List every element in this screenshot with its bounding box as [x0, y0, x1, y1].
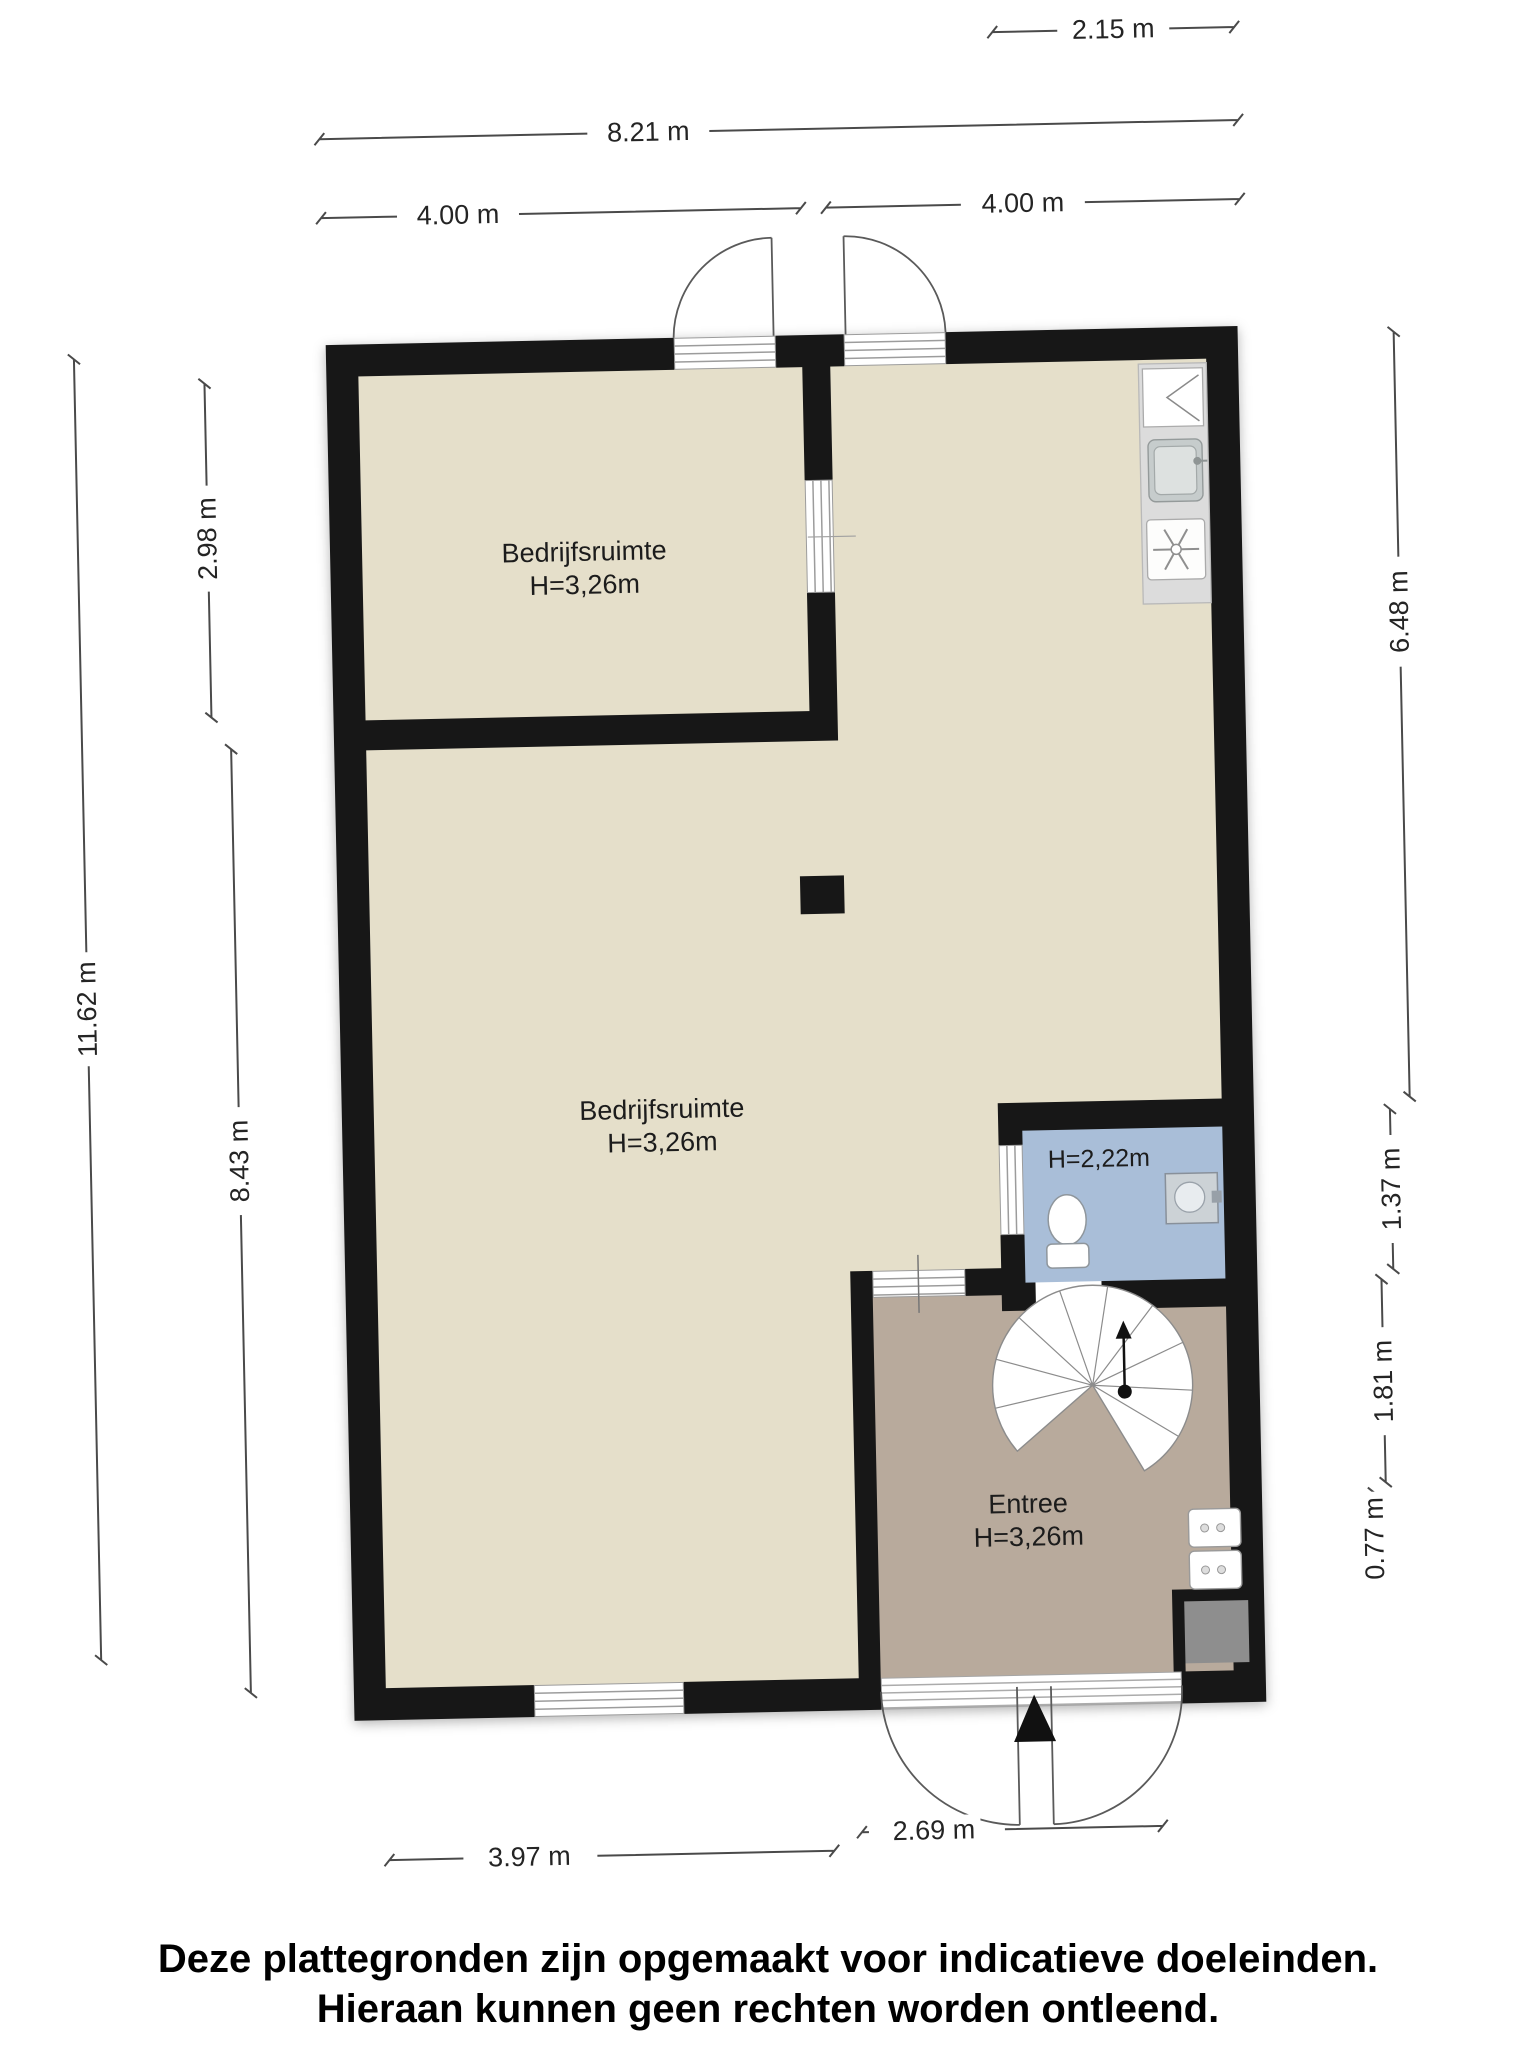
dim-top-left-half: 4.00 m	[411, 199, 504, 232]
dim-top-section: 2.15 m	[1067, 13, 1160, 46]
dim-left-upper-room: 2.98 m	[191, 492, 224, 585]
toilet-door-opening	[1035, 1281, 1102, 1310]
disclaimer-line-2: Hieraan kunnen geen rechten worden ontle…	[0, 1984, 1536, 2034]
dim-top-total: 8.21 m	[602, 116, 695, 149]
dim-bottom-left: 3.97 m	[483, 1841, 576, 1874]
wall-top-right-segment	[946, 326, 1239, 364]
window-bottom	[534, 1682, 685, 1717]
room-name: Bedrijfsruimte	[501, 534, 667, 570]
meter-closet	[1184, 1600, 1249, 1663]
dim-right-upper: 6.48 m	[1383, 565, 1416, 658]
wall-toilet-left-a	[998, 1131, 1022, 1145]
wall-bottom-left-segment	[354, 1685, 535, 1721]
window-entree-interior	[872, 1269, 966, 1298]
room-name: Entree	[973, 1487, 1084, 1522]
room-height: H=3,26m	[502, 567, 668, 603]
dim-left-lower: 8.43 m	[223, 1115, 256, 1208]
room-label-entree: Entree H=3,26m	[973, 1487, 1085, 1555]
disclaimer-line-1: Deze plattegronden zijn opgemaakt voor i…	[0, 1934, 1536, 1984]
dim-right-toilet: 1.37 m	[1375, 1142, 1408, 1235]
wall-toilet-bottom-b	[1101, 1278, 1226, 1309]
floorplan: Bedrijfsruimte H=3,26m Bedrijfsruimte H=…	[0, 0, 1536, 2048]
dim-right-hall: 1.81 m	[1367, 1335, 1400, 1428]
room-label-bedrijfsruimte-main: Bedrijfsruimte H=3,26m	[579, 1092, 745, 1161]
window-top-door-right	[844, 332, 947, 366]
wall-bottom-middle-segment	[684, 1678, 882, 1714]
wall-top-pier	[776, 334, 845, 367]
column	[800, 875, 845, 914]
room-label-bedrijfsruimte-top: Bedrijfsruimte H=3,26m	[501, 534, 667, 603]
dim-bottom-entrance: 2.69 m	[887, 1814, 980, 1847]
room-height: H=3,26m	[973, 1519, 1084, 1554]
wall-room-right-upper	[802, 367, 832, 481]
disclaimer: Deze plattegronden zijn opgemaakt voor i…	[0, 1934, 1536, 2034]
dim-top-right-half: 4.00 m	[976, 187, 1069, 220]
building	[0, 0, 1536, 2048]
floorplan-page: Bedrijfsruimte H=3,26m Bedrijfsruimte H=…	[0, 0, 1536, 2048]
wall-entree-top-segment	[965, 1268, 1024, 1296]
dim-right-porch: 0.77 m	[1358, 1492, 1391, 1585]
dim-left-total: 11.62 m	[71, 956, 104, 1062]
room-height: H=2,22m	[1048, 1143, 1151, 1176]
window-room-divider	[805, 480, 835, 594]
wall-bottom-right-segment	[1182, 1670, 1267, 1704]
room-height: H=3,26m	[580, 1125, 746, 1161]
window-top-door-left	[674, 336, 777, 370]
room-name: Bedrijfsruimte	[579, 1092, 745, 1128]
entrance-threshold	[881, 1671, 1183, 1709]
window-toilet	[999, 1145, 1025, 1235]
wall-toilet-top	[998, 1099, 1223, 1132]
room-label-toilet: H=2,22m	[1048, 1143, 1151, 1176]
